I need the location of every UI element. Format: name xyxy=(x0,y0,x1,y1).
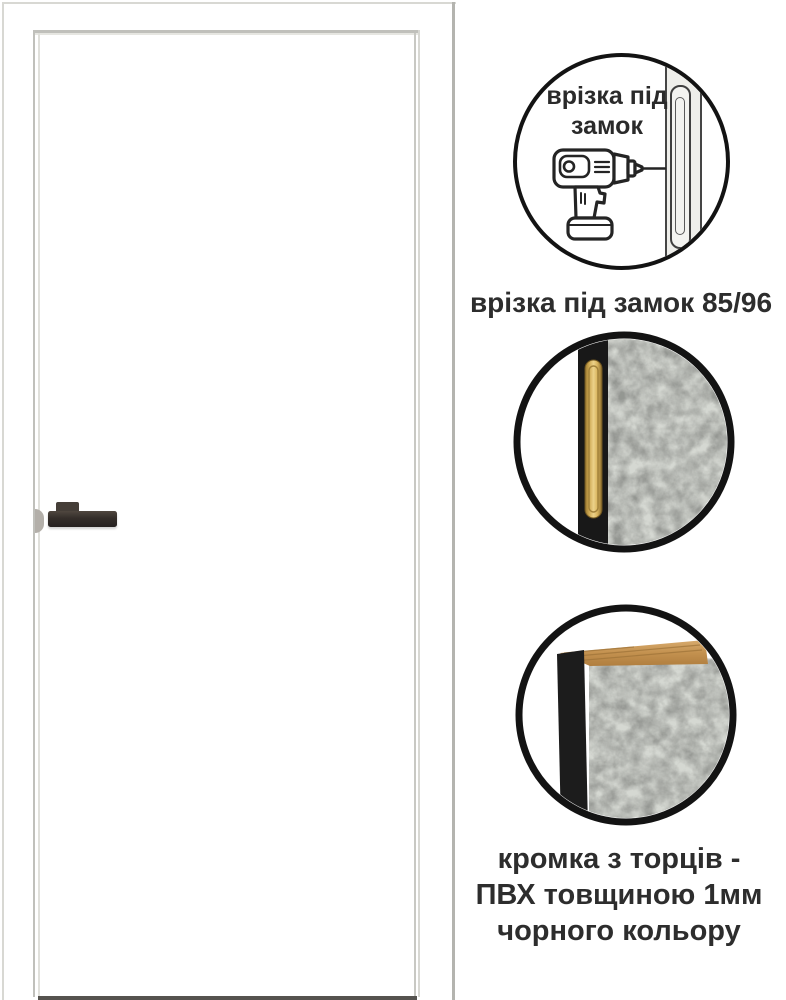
callout-circle-edge-corner xyxy=(514,603,738,827)
product-infographic: врізка під замок врізка xyxy=(0,0,786,1000)
frame-top-outer-line xyxy=(2,2,456,4)
door-photo xyxy=(0,0,456,1000)
bubble-label: врізка під замок xyxy=(517,81,697,141)
callout-circle-lock-cutout: врізка під замок xyxy=(513,53,730,270)
caption-lock-cutout: врізка під замок 85/96 xyxy=(456,287,786,319)
drill-icon xyxy=(551,141,666,247)
brass-faceplate xyxy=(585,360,602,518)
door-handle-lever xyxy=(48,511,117,527)
bubble-label-line2: замок xyxy=(517,111,697,141)
frame-right-inner-line xyxy=(418,30,420,997)
strike-plate xyxy=(35,509,44,533)
caption-edge-line1: кромка з торців - xyxy=(452,841,786,877)
frame-top-inner-highlight xyxy=(33,33,419,35)
caption-edge-detail: кромка з торців - ПВХ товщиною 1мм чорно… xyxy=(452,841,786,949)
door-bottom-shadow xyxy=(38,996,417,1000)
caption-edge-line2: ПВХ товщиною 1мм xyxy=(452,877,786,913)
caption-edge-line3: чорного кольору xyxy=(452,913,786,949)
frame-left-outer-line xyxy=(2,2,4,1000)
callout-circle-edge-brass xyxy=(512,330,736,554)
bubble-label-line1: врізка під xyxy=(517,81,697,111)
leaf-right-edge-line xyxy=(414,33,416,997)
